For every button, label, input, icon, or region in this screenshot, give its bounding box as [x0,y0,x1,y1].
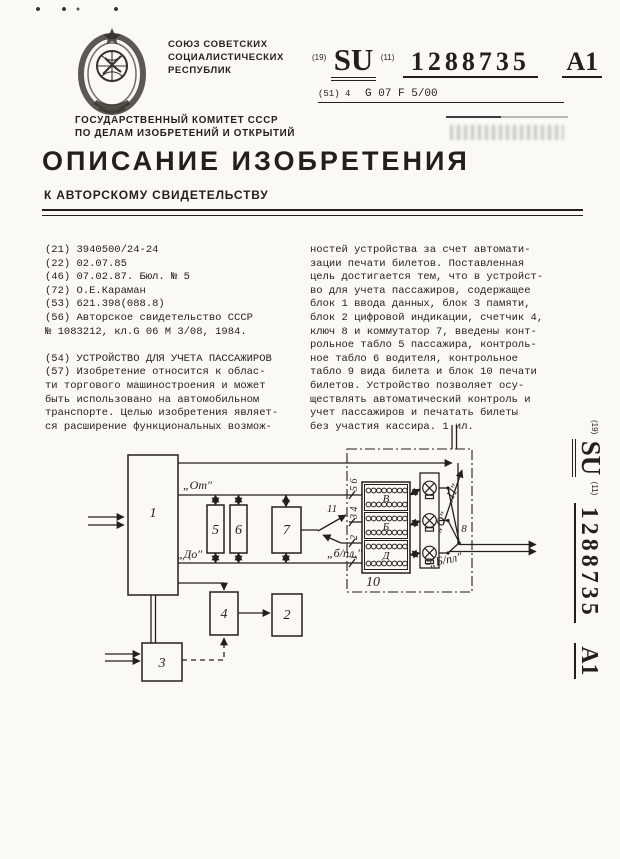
label-key-8: 8 [461,523,467,535]
label-block-1: 1 [150,506,157,521]
sidebar-code-19: (19) [590,420,599,434]
sidebar-code-11: (11) [590,482,599,496]
wire-label-o: „О″ [429,509,451,534]
divider-rule [42,209,583,216]
ipc-code: G 07 F 5/00 [365,88,438,100]
label-block-2: 2 [284,608,291,623]
country-name: СОЮЗ СОВЕТСКИХСОЦИАЛИСТИЧЕСКИХРЕСПУБЛИК [168,38,284,77]
faint-stamp [446,116,568,144]
sidebar-kind-code: A1 [574,643,602,678]
text-line: СОЮЗ СОВЕТСКИХ [168,38,284,51]
scan-artifacts [34,6,144,12]
text-line: ГОСУДАРСТВЕННЫЙ КОМИТЕТ СССР [75,114,295,127]
wire-label-p: „П″ [440,481,462,506]
patent-page: СОЮЗ СОВЕТСКИХСОЦИАЛИСТИЧЕСКИХРЕСПУБЛИК … [0,0,620,859]
sidebar-doc-number: 1288735 [574,503,602,623]
document-subtitle: К АВТОРСКОМУ СВИДЕТЕЛЬСТВУ [44,188,268,202]
text-line: блок 2 цифровой индикации, счетчик 4, [310,312,594,326]
text-line: транспорте. Целью изобретения являет- [45,407,303,421]
text-line: (72) О.Е.Караман [45,285,303,299]
text-line [45,339,303,353]
label-block-3: 3 [158,656,166,671]
sidebar-su-code: SU [572,439,606,478]
text-line: (56) Авторское свидетельство СССР [45,312,303,326]
text-line: РЕСПУБЛИК [168,64,284,77]
block-diagram: 1 5 6 7 4 2 3 9 10 11 8 В Б Д „От″ „До″ … [0,425,545,725]
bibliographic-column: (21) 3940500/24-24(22) 02.07.85(46) 07.0… [45,244,303,434]
text-line: ностей устройства за счет автомати- [310,244,594,258]
text-line: табло 9 вида билета и блок 10 печати [310,366,594,380]
text-line: (22) 02.07.85 [45,258,303,272]
printer-letter-3: Д [382,550,391,562]
wire-label-ot: „От″ [183,478,213,492]
text-line: (57) Изобретение относится к облас- [45,366,303,380]
text-line: СОЦИАЛИСТИЧЕСКИХ [168,51,284,64]
text-line: ти торгового машиностроения и может [45,380,303,394]
text-line: (21) 3940500/24-24 [45,244,303,258]
wire-number-second: 2 [349,535,360,540]
sidebar-publication-number: (19) SU (11) 1288735 A1 [550,420,606,670]
printer-letter-1: В [383,493,390,505]
text-line: (53) 621.398(088.8) [45,298,303,312]
text-line: во для учета пассажиров, содержащее [310,285,594,299]
text-line: ное табло 6 водителя, контрольное [310,353,594,367]
ussr-emblem-icon [75,24,149,116]
label-block-7: 7 [283,523,291,538]
text-line: билетов. Устройство позволяет осу- [310,380,594,394]
text-line: учет пассажиров и печатать билеты [310,407,594,421]
wiring [88,425,536,661]
label-block-5: 5 [212,523,219,538]
wire-number-top: 5 6 [349,479,360,492]
text-line: ПО ДЕЛАМ ИЗОБРЕТЕНИЙ И ОТКРЫТИЙ [75,127,295,140]
text-line: ключ 8 и коммутатор 7, введены конт- [310,326,594,340]
document-title: ОПИСАНИЕ ИЗОБРЕТЕНИЯ [42,146,470,177]
doc-number: 1288735 [403,47,538,78]
abstract-column: ностей устройства за счет автомати-зации… [310,244,594,434]
text-line: цель достигается тем, что в устройст- [310,271,594,285]
wire-label-bpl: „Б/пл″ [428,549,464,570]
text-line: блок 1 ввода данных, блок 3 памяти, [310,298,594,312]
text-line: ществлять автоматический контроль и [310,394,594,408]
committee-name: ГОСУДАРСТВЕННЫЙ КОМИТЕТ СССРПО ДЕЛАМ ИЗО… [75,114,295,140]
label-block-4: 4 [221,607,228,622]
ipc-prefix: (51) 4 [318,89,350,99]
wire-label-do: „До″ [177,547,203,561]
text-line: зации печати билетов. Поставленная [310,258,594,272]
text-line: рольное табло 5 пассажира, контроль- [310,339,594,353]
wire-number-bottom: 1 [349,555,360,560]
text-line: (46) 07.02.87. Бюл. № 5 [45,271,303,285]
text-line: быть использовано на автомобильном [45,394,303,408]
publication-number-header: (19) SU (11) 1288735 A1 [312,42,602,78]
block-1-input [128,455,178,595]
wire-number-middle: 3 4 [349,507,360,521]
ipc-classification: (51) 4 G 07 F 5/00 [318,88,564,103]
kind-code: A1 [562,47,602,78]
code-11-label: (11) [381,53,395,62]
code-19-label: (19) [312,53,326,62]
label-block-10: 10 [366,575,380,590]
text-line: (54) УСТРОЙСТВО ДЛЯ УЧЕТА ПАССАЖИРОВ [45,353,303,367]
text-line: № 1083212, кл.G 06 M 3/08, 1984. [45,326,303,340]
label-switch-11: 11 [327,503,337,515]
label-block-6: 6 [235,523,242,538]
su-code: SU [331,42,377,81]
printer-letter-2: Б [382,521,390,533]
